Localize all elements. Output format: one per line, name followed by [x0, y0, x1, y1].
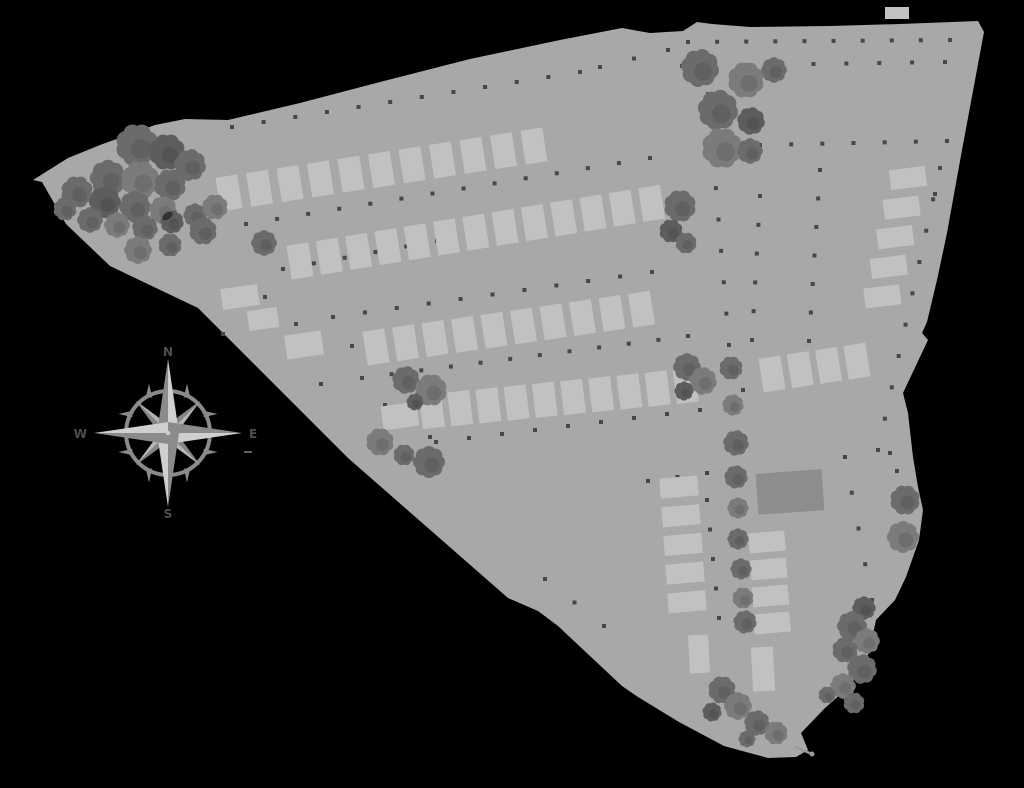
utility-dot — [479, 361, 483, 365]
tree-canopy — [727, 497, 748, 518]
lot — [616, 373, 642, 409]
utility-dot — [910, 291, 914, 295]
utility-dot — [917, 260, 921, 264]
utility-dot — [852, 141, 856, 145]
lot — [665, 561, 705, 584]
utility-dot — [938, 166, 942, 170]
utility-dot — [566, 424, 570, 428]
utility-dot — [666, 48, 670, 52]
utility-dot — [744, 40, 748, 44]
lot — [667, 590, 707, 613]
utility-dot — [919, 38, 923, 42]
utility-dot — [844, 62, 848, 66]
utility-dot — [428, 435, 432, 439]
utility-dot — [586, 279, 590, 283]
utility-dot — [373, 250, 377, 254]
utility-dot — [459, 297, 463, 301]
building-footprint — [756, 469, 825, 515]
utility-dot — [546, 75, 550, 79]
utility-dot — [350, 344, 354, 348]
utility-dot — [360, 376, 364, 380]
boundary-tail-marker — [810, 752, 815, 757]
tree-canopy — [674, 381, 693, 400]
lot — [560, 379, 586, 415]
utility-dot — [724, 312, 728, 316]
compass-hub — [166, 431, 170, 435]
compass-ring-barb — [146, 469, 152, 483]
compass-ring-barb — [184, 384, 190, 398]
tree-canopy — [124, 236, 152, 264]
utility-dot — [524, 176, 528, 180]
utility-dot — [686, 40, 690, 44]
utility-dot — [850, 491, 854, 495]
utility-dot — [807, 339, 811, 343]
compass-ring-barb — [119, 449, 133, 455]
utility-dot — [750, 338, 754, 342]
compass-rose — [94, 359, 252, 507]
utility-dot — [263, 295, 267, 299]
lot — [504, 384, 530, 420]
utility-dot — [343, 256, 347, 260]
utility-dot — [863, 562, 867, 566]
compass-label-east: E — [249, 427, 257, 441]
utility-dot — [306, 212, 310, 216]
utility-dot — [632, 416, 636, 420]
utility-dot — [717, 616, 721, 620]
utility-dot — [467, 436, 471, 440]
compass-ring-barb — [146, 384, 152, 398]
utility-dot — [419, 368, 423, 372]
utility-dot — [722, 280, 726, 284]
utility-dot — [567, 349, 571, 353]
tree-canopy — [730, 558, 751, 579]
utility-dot — [230, 125, 234, 129]
utility-dot — [319, 382, 323, 386]
utility-dot — [814, 225, 818, 229]
utility-dot — [430, 192, 434, 196]
utility-dot — [388, 100, 392, 104]
utility-dot — [646, 479, 650, 483]
tree-canopy — [251, 230, 277, 256]
utility-dot — [931, 197, 935, 201]
utility-dot — [555, 171, 559, 175]
lot — [661, 504, 701, 527]
utility-dot — [705, 471, 709, 475]
utility-dot — [861, 39, 865, 43]
utility-dot — [809, 311, 813, 315]
utility-dot — [420, 95, 424, 99]
utility-dot — [493, 181, 497, 185]
utility-dot — [331, 315, 335, 319]
tree-canopy — [727, 528, 748, 549]
utility-dot — [586, 166, 590, 170]
lot — [750, 557, 788, 580]
lot — [659, 475, 699, 498]
utility-dot — [395, 306, 399, 310]
utility-dot — [578, 70, 582, 74]
utility-dot — [602, 624, 606, 628]
utility-dot — [714, 186, 718, 190]
lot — [284, 331, 324, 360]
utility-dot — [897, 354, 901, 358]
utility-dot — [275, 217, 279, 221]
utility-dot — [617, 161, 621, 165]
compass-label-south: S — [164, 507, 173, 521]
utility-dot — [368, 202, 372, 206]
utility-dot — [434, 440, 438, 444]
utility-dot — [221, 332, 225, 336]
compass-label-west: W — [74, 427, 87, 441]
utility-dot — [816, 197, 820, 201]
plan-layers — [33, 7, 984, 758]
tree-canopy — [738, 730, 755, 747]
utility-dot — [895, 469, 899, 473]
utility-dot — [543, 577, 547, 581]
utility-dot — [904, 323, 908, 327]
utility-dot — [538, 353, 542, 357]
tree-canopy — [737, 138, 763, 164]
utility-dot — [522, 288, 526, 292]
utility-dot — [715, 40, 719, 44]
lot — [645, 370, 671, 406]
utility-dot — [813, 254, 817, 258]
lot — [532, 382, 558, 418]
utility-dot — [717, 218, 721, 222]
lot — [663, 533, 703, 556]
lot — [885, 7, 909, 19]
utility-dot — [483, 85, 487, 89]
utility-dot — [933, 192, 937, 196]
utility-dot — [650, 270, 654, 274]
utility-dot — [756, 223, 760, 227]
tree-canopy — [104, 212, 130, 238]
utility-dot — [262, 120, 266, 124]
lot — [752, 584, 790, 607]
utility-dot — [883, 140, 887, 144]
utility-dot — [294, 322, 298, 326]
utility-dot — [325, 110, 329, 114]
utility-dot — [820, 142, 824, 146]
utility-dot — [883, 417, 887, 421]
utility-dot — [714, 587, 718, 591]
utility-dot — [337, 207, 341, 211]
utility-dot — [890, 38, 894, 42]
utility-dot — [812, 62, 816, 66]
utility-dot — [890, 385, 894, 389]
utility-dot — [711, 557, 715, 561]
utility-dot — [598, 65, 602, 69]
utility-dot — [719, 249, 723, 253]
utility-dot — [924, 229, 928, 233]
utility-dot — [357, 105, 361, 109]
utility-dot — [312, 261, 316, 265]
utility-dot — [698, 408, 702, 412]
tree-canopy — [887, 521, 919, 553]
utility-dot — [727, 343, 731, 347]
utility-dot — [491, 293, 495, 297]
utility-dot — [753, 280, 757, 284]
utility-dot — [656, 338, 660, 342]
tree-canopy — [77, 207, 103, 233]
utility-dot — [832, 39, 836, 43]
compass-ring-barb — [184, 469, 190, 483]
utility-dot — [910, 61, 914, 65]
utility-dot — [573, 601, 577, 605]
utility-dot — [665, 412, 669, 416]
utility-dot — [877, 61, 881, 65]
utility-dot — [705, 498, 709, 502]
utility-dot — [632, 57, 636, 61]
utility-dot — [818, 168, 822, 172]
utility-dot — [857, 527, 861, 531]
utility-dot — [293, 115, 297, 119]
utility-dot — [755, 252, 759, 256]
utility-dot — [758, 194, 762, 198]
utility-dot — [945, 139, 949, 143]
utility-dot — [948, 38, 952, 42]
utility-dot — [648, 156, 652, 160]
utility-dot — [554, 284, 558, 288]
site-plan-map: N E S W — [0, 0, 1024, 788]
utility-dot — [752, 309, 756, 313]
utility-dot — [244, 222, 248, 226]
utility-dot — [811, 282, 815, 286]
utility-dot — [627, 342, 631, 346]
lot — [753, 611, 791, 634]
utility-dot — [363, 311, 367, 315]
lot — [247, 307, 279, 331]
utility-dot — [515, 80, 519, 84]
utility-dot — [533, 428, 537, 432]
utility-dot — [462, 186, 466, 190]
tree-canopy — [413, 446, 445, 478]
utility-dot — [281, 267, 285, 271]
utility-dot — [599, 420, 603, 424]
utility-dot — [427, 302, 431, 306]
tree-canopy — [761, 57, 787, 83]
utility-dot — [789, 142, 793, 146]
utility-dot — [773, 39, 777, 43]
utility-dot — [876, 448, 880, 452]
lot — [688, 635, 710, 674]
utility-dot — [943, 60, 947, 64]
utility-dot — [843, 455, 847, 459]
utility-dot — [914, 140, 918, 144]
lot — [588, 376, 614, 412]
utility-dot — [802, 39, 806, 43]
compass-ring-barb — [204, 449, 218, 455]
utility-dot — [888, 451, 892, 455]
lot — [475, 387, 501, 423]
compass-label-north: N — [163, 345, 173, 359]
utility-dot — [500, 432, 504, 436]
lot — [748, 530, 786, 553]
site-plan-canvas: N E S W — [0, 0, 1024, 788]
compass-ring-barb — [204, 411, 218, 417]
utility-dot — [399, 197, 403, 201]
compass-ring-barb — [119, 411, 133, 417]
utility-dot — [686, 334, 690, 338]
lot — [751, 646, 775, 691]
utility-dot — [449, 365, 453, 369]
utility-dot — [708, 528, 712, 532]
lot — [447, 390, 473, 426]
tree-canopy — [854, 628, 880, 654]
utility-dot — [741, 388, 745, 392]
utility-dot — [508, 357, 512, 361]
utility-dot — [451, 90, 455, 94]
utility-dot — [618, 275, 622, 279]
utility-dot — [597, 345, 601, 349]
